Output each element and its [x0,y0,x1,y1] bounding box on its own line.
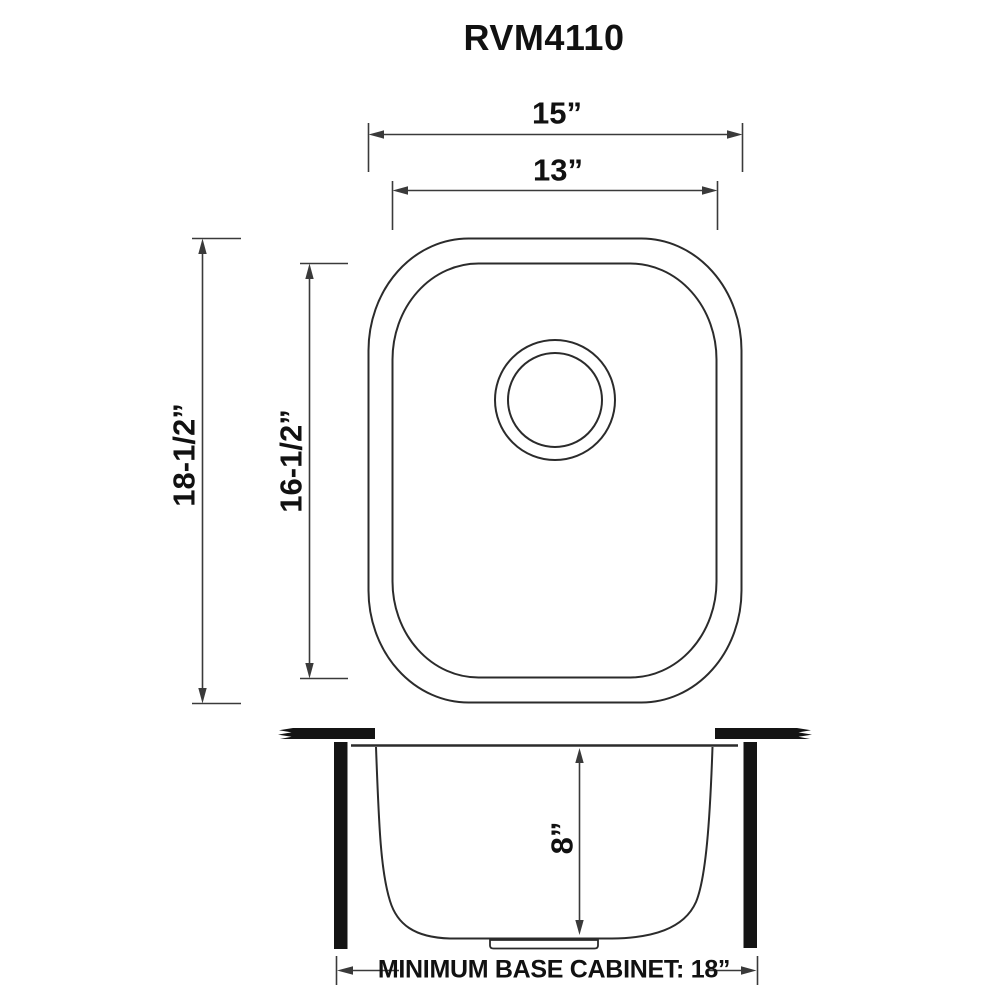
dimension-lines [192,123,758,985]
dimension-drawing [0,0,1000,1000]
countertop-right [715,728,812,739]
countertop-left [278,728,375,739]
arrow-left-icon [369,130,385,138]
arrow-right-icon [702,186,718,194]
arrow-down-icon [575,920,583,935]
depth-dimension-label: 8” [547,822,578,855]
drain-outer-circle [495,340,615,460]
arrow-right-icon [727,130,743,138]
cabinet-wall-left [334,742,348,949]
arrow-down-icon [198,688,206,704]
arrow-down-icon [305,663,313,679]
cabinet-wall-right [744,742,758,948]
inner-length-dimension-label: 16-1/2” [276,409,307,512]
arrow-right-icon [741,966,757,974]
sink-bowl-inner-outline [393,264,717,678]
outer-length-dimension-label: 18-1/2” [169,403,200,506]
arrow-left-icon [393,186,409,194]
arrow-up-icon [575,748,583,763]
base-cabinet-dimension-label: MINIMUM BASE CABINET: 18” [378,958,730,983]
arrow-up-icon [198,239,206,255]
top-view [369,239,742,703]
outer-width-dimension-label: 15” [532,98,582,129]
dim-inner-width [393,181,718,230]
model-number-title: RVM4110 [464,20,625,56]
arrow-up-icon [305,264,313,280]
sink-spec-diagram: RVM4110 15” 13” 18-1/2” 16-1/2” 8” MINIM… [0,0,1000,1000]
arrow-left-icon [337,966,353,974]
inner-width-dimension-label: 13” [533,155,583,186]
drain-inner-circle [508,353,602,447]
sink-outer-rim-outline [369,239,742,703]
drain-lip [490,940,598,949]
